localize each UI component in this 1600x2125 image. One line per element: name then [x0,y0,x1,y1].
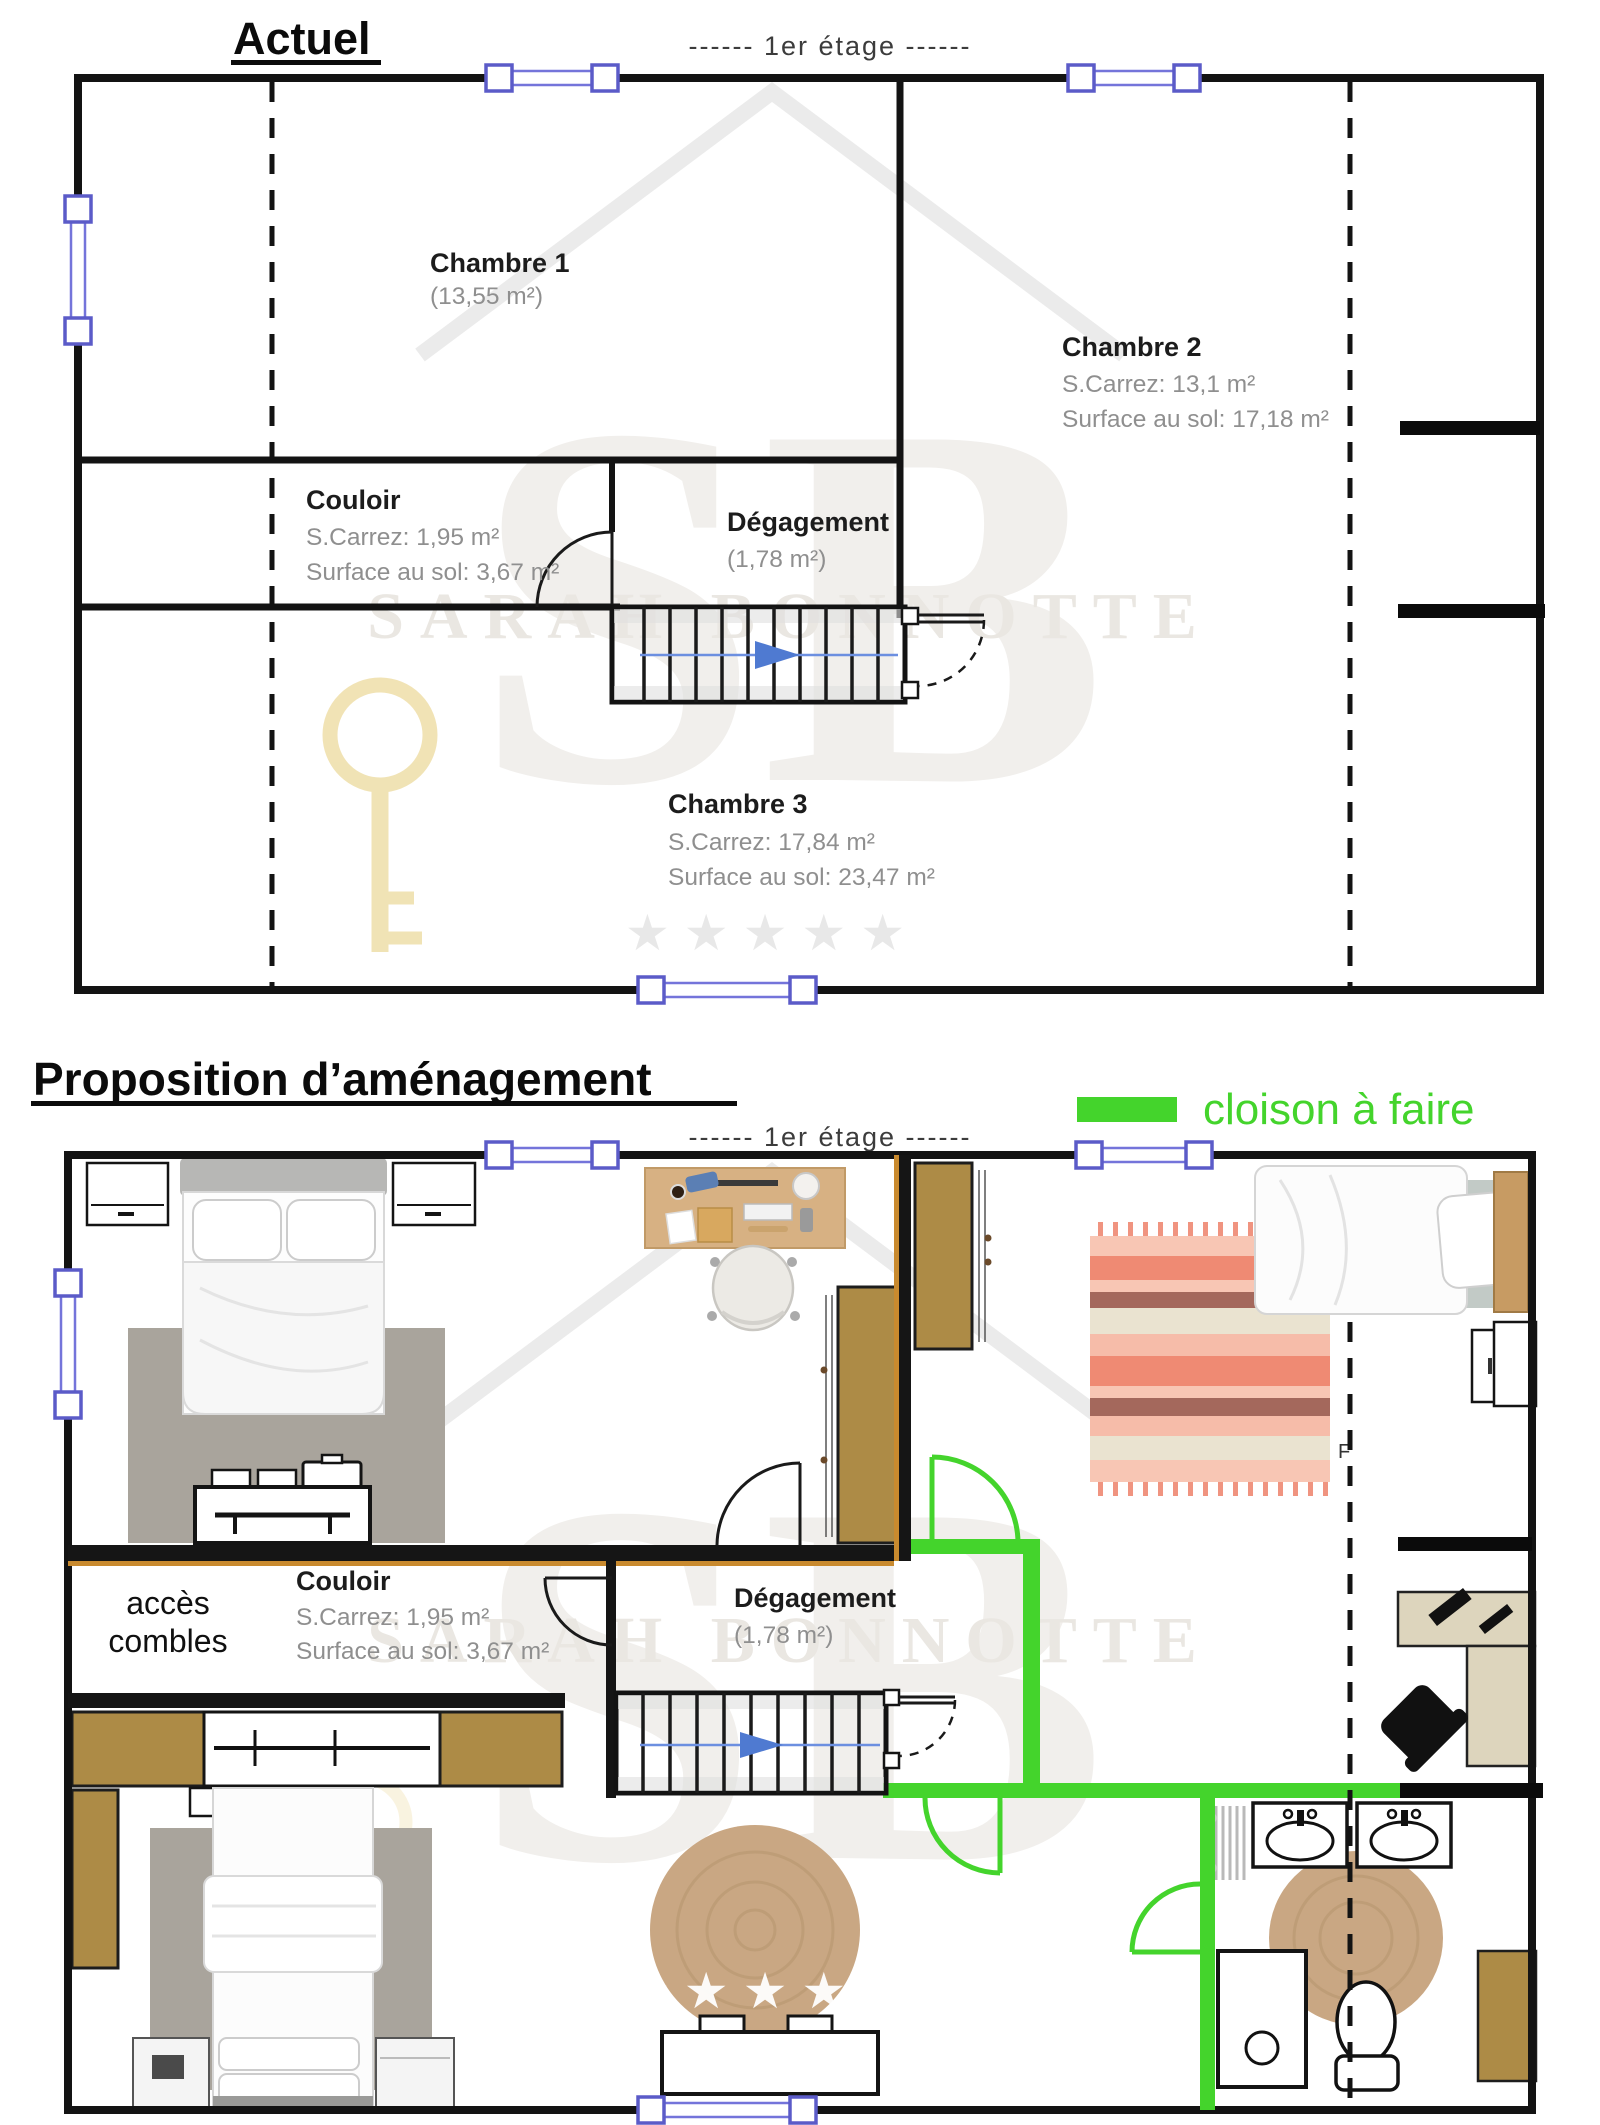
desk [645,1168,845,1248]
faucet-icon [1297,1810,1304,1826]
svg-text:accès: accès [126,1585,210,1621]
window-symbol-bottom [638,977,816,1003]
key-watermark-icon [330,685,430,952]
staircase-actuel [612,607,905,702]
keyboard [744,1204,792,1220]
plan-proposition: SB SARAH BONNOTTE [55,1142,1543,2123]
nightstand-corner [1472,1322,1536,1406]
window-symbol-top-1 [486,65,618,91]
plan-proposition-floor-label: ------ 1er étage ------ [689,1122,972,1152]
toilet-tank [1336,2056,1398,2090]
knee-wall-lower [1398,604,1545,618]
shower-tray [1218,1951,1306,2087]
faucet-icon [1401,1810,1408,1826]
svg-text:S.Carrez: 1,95 m²: S.Carrez: 1,95 m² [296,1604,489,1631]
plan-proposition-title: Proposition d’aménagement [33,1053,652,1105]
plan-actuel-title: Actuel [233,13,371,64]
toilet [1336,1982,1398,2090]
tall-cabinet [72,1790,118,1968]
svg-text:combles: combles [108,1623,227,1659]
knee-wall-lower [1400,1783,1543,1798]
suitcase [303,1462,361,1488]
plan-proposition-title-underline [31,1101,737,1106]
room-label-chambre-2: Chambre 2 S.Carrez: 13,1 m² Surface au s… [1062,332,1329,433]
wardrobe-left-of-wall [821,1287,897,1543]
window-symbol-top-1 [486,1142,618,1168]
papers [666,1210,696,1243]
wall-couloir-top [68,1545,894,1561]
legend-partition-label: cloison à faire [1203,1085,1474,1134]
legend-partition-swatch [1077,1097,1177,1122]
partition-green-top [911,1539,1023,1554]
pillow [219,2038,359,2070]
plan-actuel: SB SARAH BONNOTTE ★★★★★ [65,65,1545,1003]
svg-text:Dégagement: Dégagement [734,1583,896,1613]
svg-text:S.Carrez: 1,95 m²: S.Carrez: 1,95 m² [306,524,499,551]
partition-green-vertical-a [1023,1539,1040,1798]
phone [800,1208,813,1232]
nightstand-bed2-right [376,2038,454,2108]
single-bed [1255,1166,1528,1314]
headboard [1494,1172,1528,1312]
floor-plan-page: Actuel ------ 1er étage ------ SB SARAH … [0,0,1600,2125]
svg-text:(1,78 m²): (1,78 m²) [734,1622,833,1649]
door-swing-arc-green [1132,1884,1200,1952]
knee-wall-upper [1400,421,1540,435]
svg-text:Surface au sol: 23,47 m²: Surface au sol: 23,47 m² [668,864,935,891]
accent-line-orange-vertical [894,1155,899,1561]
desk-lamp [793,1173,819,1199]
shower-drain [1246,2032,1278,2064]
stars-watermark: ★★★★★ [625,1962,919,2020]
window-symbol-left [65,196,91,344]
svg-text:S.Carrez: 13,1 m²: S.Carrez: 13,1 m² [1062,371,1255,398]
svg-text:Dégagement: Dégagement [727,507,889,537]
wall-bedrooms-divider [899,1155,911,1561]
wall-couloir-bottom [68,1693,565,1708]
rolled-duvet [204,1876,382,1972]
window-symbol-top-2 [1068,65,1200,91]
svg-text:Chambre 1: Chambre 1 [430,248,570,278]
label-acces-combles: accès combles [108,1585,227,1659]
room-label-chambre-1: Chambre 1 (13,55 m²) [430,248,570,310]
nightstand-right [393,1163,475,1225]
sink-basin [1267,1822,1333,1860]
knee-wall-upper [1398,1537,1532,1551]
plan-actuel-title-underline [231,60,381,65]
plan-actuel-floor-label: ------ 1er étage ------ [689,31,972,61]
notebook [698,1208,732,1242]
svg-text:(13,55 m²): (13,55 m²) [430,283,543,310]
house-watermark-icon [420,92,1124,355]
pillow [287,1200,375,1260]
window-symbol-bottom [638,2097,816,2123]
accent-line-orange [68,1561,894,1566]
window-symbol-left [55,1270,81,1418]
svg-text:Surface au sol: 17,18 m²: Surface au sol: 17,18 m² [1062,406,1329,433]
pillow [193,1200,281,1260]
double-bed-2 [204,1788,382,2108]
door-green-bathroom [1132,1884,1200,1952]
sink-basin [1371,1822,1437,1860]
coffee-cup [671,1185,685,1199]
duvet [183,1262,384,1414]
svg-text:(1,78 m²): (1,78 m²) [727,546,826,573]
nightstand-left [87,1163,168,1225]
rug-fringe-bottom [1098,1482,1328,1496]
svg-text:Chambre 2: Chambre 2 [1062,332,1202,362]
double-bed-1 [180,1158,387,1414]
window-symbol-top-2 [1076,1142,1212,1168]
svg-text:Surface au sol: 3,67 m²: Surface au sol: 3,67 m² [306,559,559,586]
office-chair-black [1371,1675,1470,1774]
svg-text:Couloir: Couloir [296,1566,391,1596]
stars-watermark: ★★★★★ [625,904,919,962]
partition-green-vertical-b [1200,1798,1215,2110]
nightstand-bed2-left [133,2038,209,2108]
svg-text:Couloir: Couloir [306,485,401,515]
sink-vanity-1 [1253,1803,1347,1867]
sink-vanity-2 [1357,1803,1451,1867]
svg-text:Chambre 3: Chambre 3 [668,789,808,819]
svg-text:Surface au sol: 3,67 m²: Surface au sol: 3,67 m² [296,1638,549,1665]
office-chair [707,1246,800,1330]
svg-text:S.Carrez: 17,84 m²: S.Carrez: 17,84 m² [668,829,875,856]
partition-green-horizontal [883,1783,1400,1798]
bath-cabinet [1478,1951,1536,2081]
